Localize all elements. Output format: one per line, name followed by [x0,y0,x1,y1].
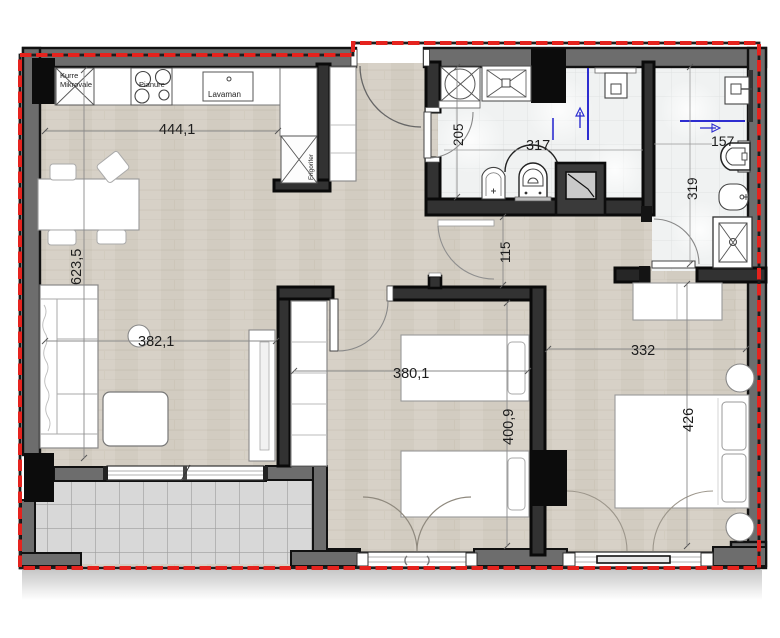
svg-text:623,5: 623,5 [69,249,85,285]
svg-text:400,9: 400,9 [501,409,517,445]
svg-text:332: 332 [631,343,655,359]
svg-text:Frigorifer: Frigorifer [308,153,315,180]
svg-text:157: 157 [711,133,735,149]
svg-text:444,1: 444,1 [159,122,195,138]
svg-text:380,1: 380,1 [393,366,429,382]
svg-text:317: 317 [526,138,550,154]
svg-text:426: 426 [681,408,697,432]
svg-text:Kurre: Kurre [60,71,78,80]
svg-text:382,1: 382,1 [138,334,174,350]
svg-text:Lavaman: Lavaman [208,90,241,99]
svg-text:205: 205 [451,123,466,146]
svg-text:115: 115 [498,241,513,263]
svg-text:Pianure: Pianure [139,80,165,89]
svg-text:Mikrovale: Mikrovale [60,80,92,89]
svg-text:319: 319 [685,177,700,200]
